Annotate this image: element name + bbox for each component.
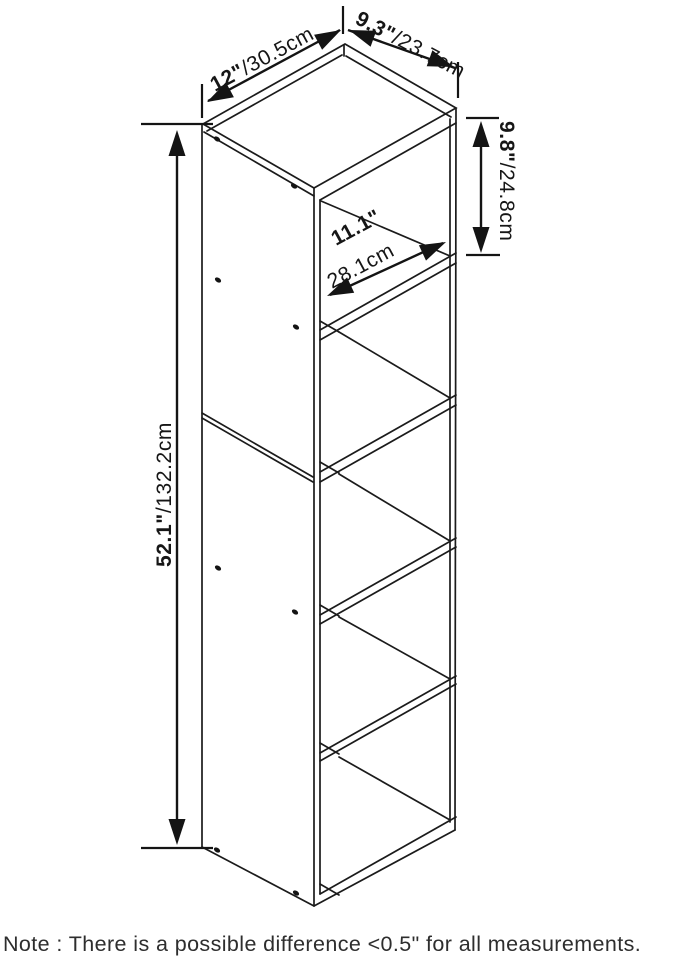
width-dimension-label: 12"/30.5cm	[206, 22, 317, 96]
width-arrowhead-right	[314, 30, 341, 50]
front-bottom-edge	[314, 830, 455, 906]
cubby-height-dimension: 9.8"/24.8cm	[466, 118, 518, 255]
cubby-height-dimension-label: 9.8"/24.8cm	[495, 121, 518, 241]
middle-shelf-front-bottom-line	[320, 405, 456, 482]
cubby-interior-lines	[320, 201, 450, 895]
shelf-unit-outline	[202, 44, 456, 906]
top-board-front-line	[320, 123, 456, 200]
interior-width-dimension: 11.1" 28.1cm	[323, 205, 446, 296]
interior-width-metric-label: 28.1cm	[323, 239, 398, 294]
shelf1-left-wedge-line	[320, 321, 339, 332]
cubby-arrowhead-up	[473, 121, 490, 147]
cubby2-back-diagonal	[339, 332, 450, 398]
side-panel-joint-line-upper	[202, 413, 313, 477]
bottom-board-front-line	[320, 817, 456, 894]
height-arrowhead-up	[169, 130, 186, 156]
cam-hole-dots	[213, 135, 300, 896]
shelf4-front-bottom-line	[320, 684, 456, 761]
side-panel-top-band	[204, 132, 314, 196]
shelf4-front-top-line	[320, 676, 456, 753]
depth-dimension: 9.3"/23.7cm	[348, 7, 469, 98]
cam-hole-dot	[214, 276, 222, 283]
cubby3-back-diagonal	[339, 474, 450, 541]
overall-height-dimension-label: 52.1"/132.2cm	[153, 422, 176, 567]
height-arrowhead-down	[169, 819, 186, 845]
measurement-note: Note : There is a possible difference <0…	[3, 932, 641, 956]
cam-hole-dot	[292, 323, 300, 330]
bookshelf-line-drawing: 52.1"/132.2cm 12"/30.5cm 9.3"/23.7cm 9.8…	[0, 0, 679, 958]
dimension-diagram-page: 52.1"/132.2cm 12"/30.5cm 9.3"/23.7cm 9.8…	[0, 0, 679, 958]
width-dimension: 12"/30.5cm	[202, 6, 343, 118]
interior-width-inch-label: 11.1"	[327, 205, 384, 250]
cam-hole-dot	[291, 608, 299, 615]
shelf3-front-top-line	[320, 538, 456, 615]
middle-shelf-front-top-line	[320, 395, 456, 472]
side-panel-joint-line-lower	[202, 418, 313, 482]
cubby5-back-diagonal	[339, 757, 450, 820]
shelf3-front-bottom-line	[320, 547, 456, 624]
cam-hole-dot	[214, 564, 222, 571]
cubby-arrowhead-down	[473, 227, 490, 253]
right-outer-vertical-edge	[455, 108, 456, 830]
side-panel-bottom-edge	[202, 847, 314, 906]
cubby4-back-diagonal	[339, 617, 450, 679]
interior-arrowhead-right	[419, 242, 446, 261]
